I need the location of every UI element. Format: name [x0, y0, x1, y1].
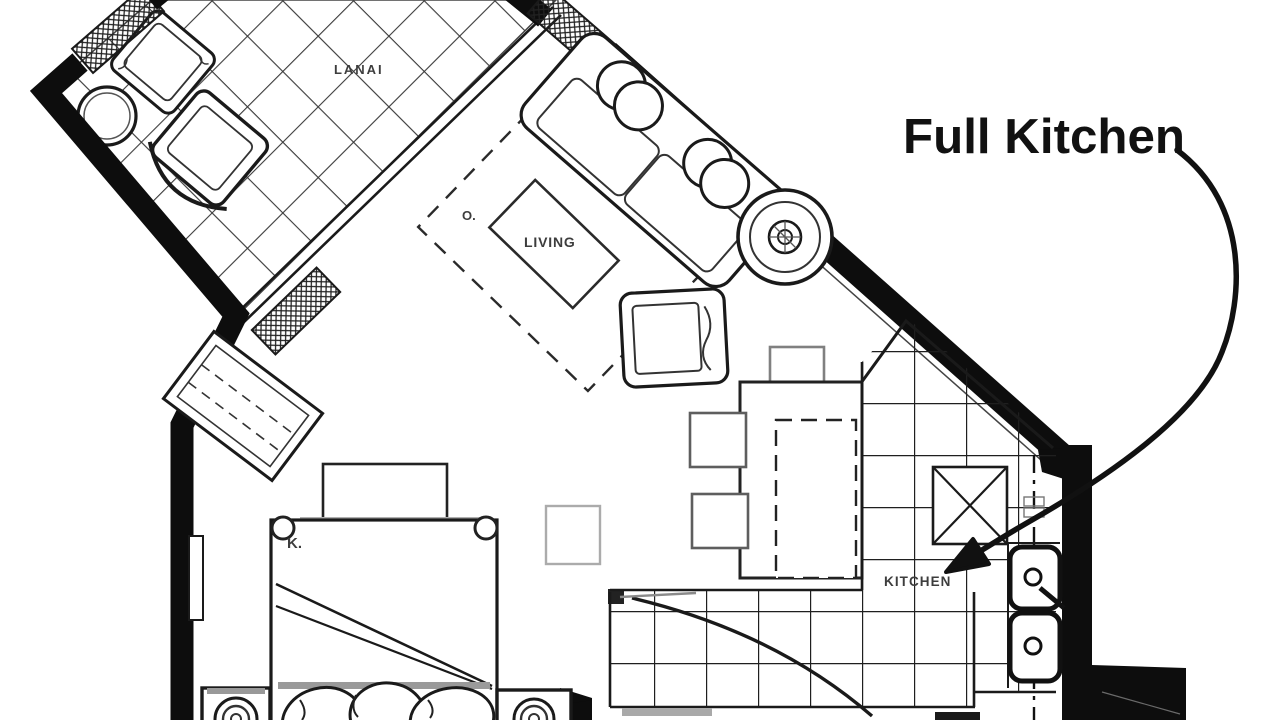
floor-plan-drawing: LANAI	[0, 0, 1280, 720]
bed-label: K.	[287, 535, 302, 552]
dining-chair	[690, 413, 746, 467]
side-table	[738, 190, 832, 284]
nightstand	[202, 688, 270, 720]
full-kitchen-label: Full Kitchen	[903, 110, 1185, 164]
dining-chair	[692, 494, 748, 548]
dining-table-leaf	[776, 420, 856, 578]
bedpost	[475, 517, 497, 539]
nightstand	[497, 690, 571, 720]
living-note-label: O.	[462, 208, 476, 223]
sink-icon	[1010, 547, 1064, 681]
living-label: LIVING	[524, 234, 576, 250]
wall-stub	[573, 700, 592, 720]
headboard-dresser	[323, 464, 447, 519]
stove-icon	[933, 467, 1007, 544]
floor-plan-image: LANAI	[0, 0, 1280, 720]
kitchen-label: KITCHEN	[884, 574, 952, 589]
armchair	[620, 288, 729, 387]
door-threshold	[622, 708, 712, 716]
lanai-label: LANAI	[334, 62, 384, 77]
bedroom-window	[189, 536, 203, 620]
wall-stub	[935, 712, 980, 720]
